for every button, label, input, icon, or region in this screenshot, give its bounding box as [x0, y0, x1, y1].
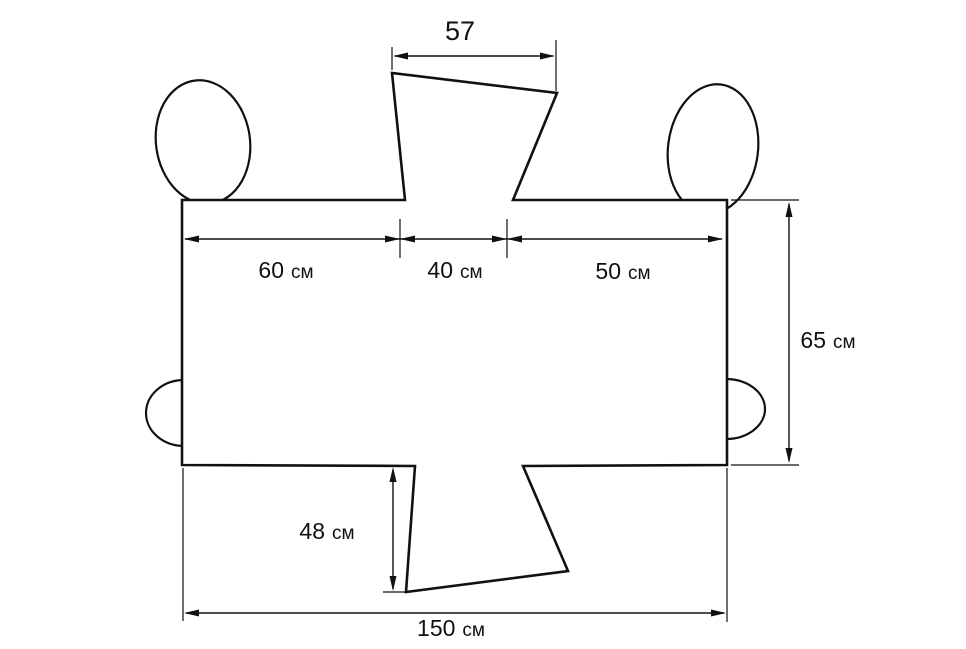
dimension-label: 57	[445, 16, 475, 46]
pattern-outline	[182, 73, 727, 592]
arrow-left-icon	[393, 53, 408, 60]
dimension-label: 150см	[417, 615, 485, 641]
dimension-bottom-flap-height: 48см	[299, 467, 408, 592]
arrow-right-icon	[711, 610, 726, 617]
pattern-diagram: 57 60см 40см 50см	[0, 0, 966, 649]
diagram-svg: 57 60см 40см 50см	[0, 0, 966, 649]
top-left-sleeve-ellipse	[148, 74, 258, 210]
arrow-up-icon	[390, 467, 397, 482]
dimension-label: 65см	[800, 327, 855, 353]
arrow-right-icon	[540, 53, 555, 60]
arrow-down-icon	[786, 448, 793, 463]
arrow-up-icon	[786, 202, 793, 217]
arrow-left-icon	[184, 610, 199, 617]
arrow-down-icon	[390, 576, 397, 591]
dimension-label: 48см	[299, 518, 354, 544]
top-right-sleeve-ellipse	[660, 79, 765, 219]
